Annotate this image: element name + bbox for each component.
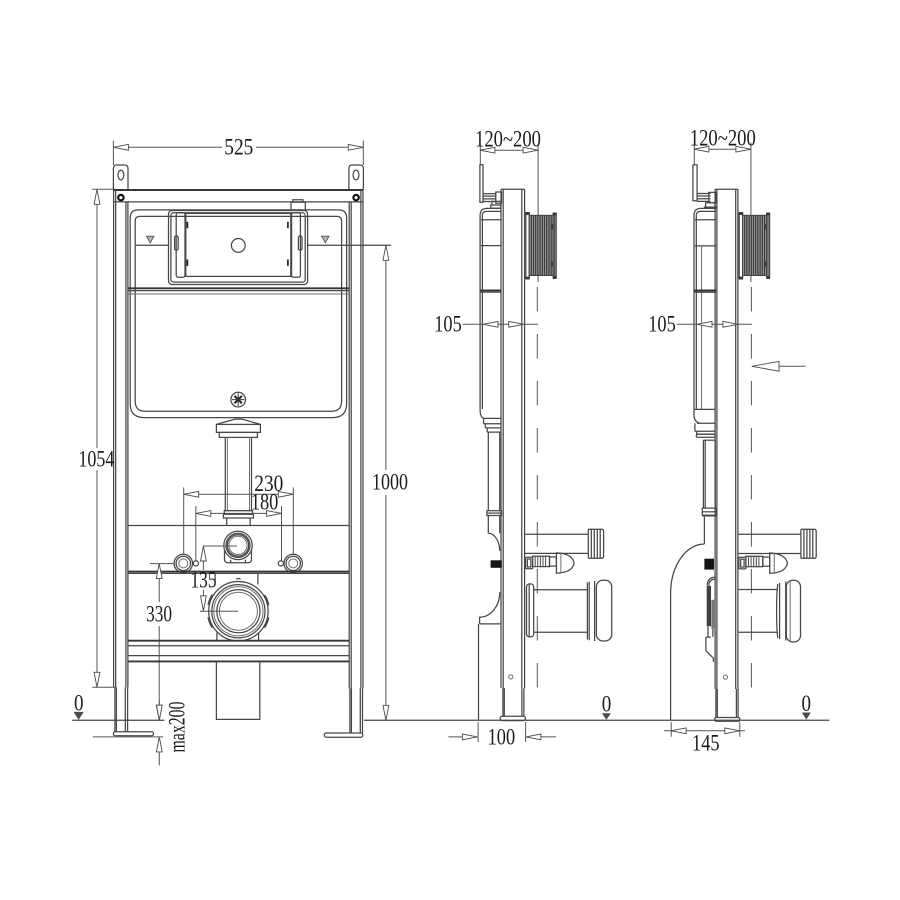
svg-text:100: 100 (488, 724, 516, 749)
svg-text:1000: 1000 (372, 470, 408, 495)
svg-text:105: 105 (434, 312, 462, 337)
svg-text:525: 525 (224, 134, 253, 159)
svg-text:105: 105 (648, 312, 676, 337)
svg-text:135: 135 (191, 568, 217, 593)
svg-text:0: 0 (802, 691, 812, 716)
svg-text:330: 330 (146, 601, 172, 626)
svg-text:120~200: 120~200 (475, 127, 541, 152)
svg-text:0: 0 (602, 692, 612, 717)
svg-text:120~200: 120~200 (690, 126, 756, 151)
svg-text:145: 145 (692, 731, 720, 756)
svg-text:180: 180 (251, 490, 279, 515)
svg-text:max200: max200 (165, 702, 190, 753)
svg-text:0: 0 (74, 691, 84, 716)
svg-text:1054: 1054 (78, 446, 114, 471)
